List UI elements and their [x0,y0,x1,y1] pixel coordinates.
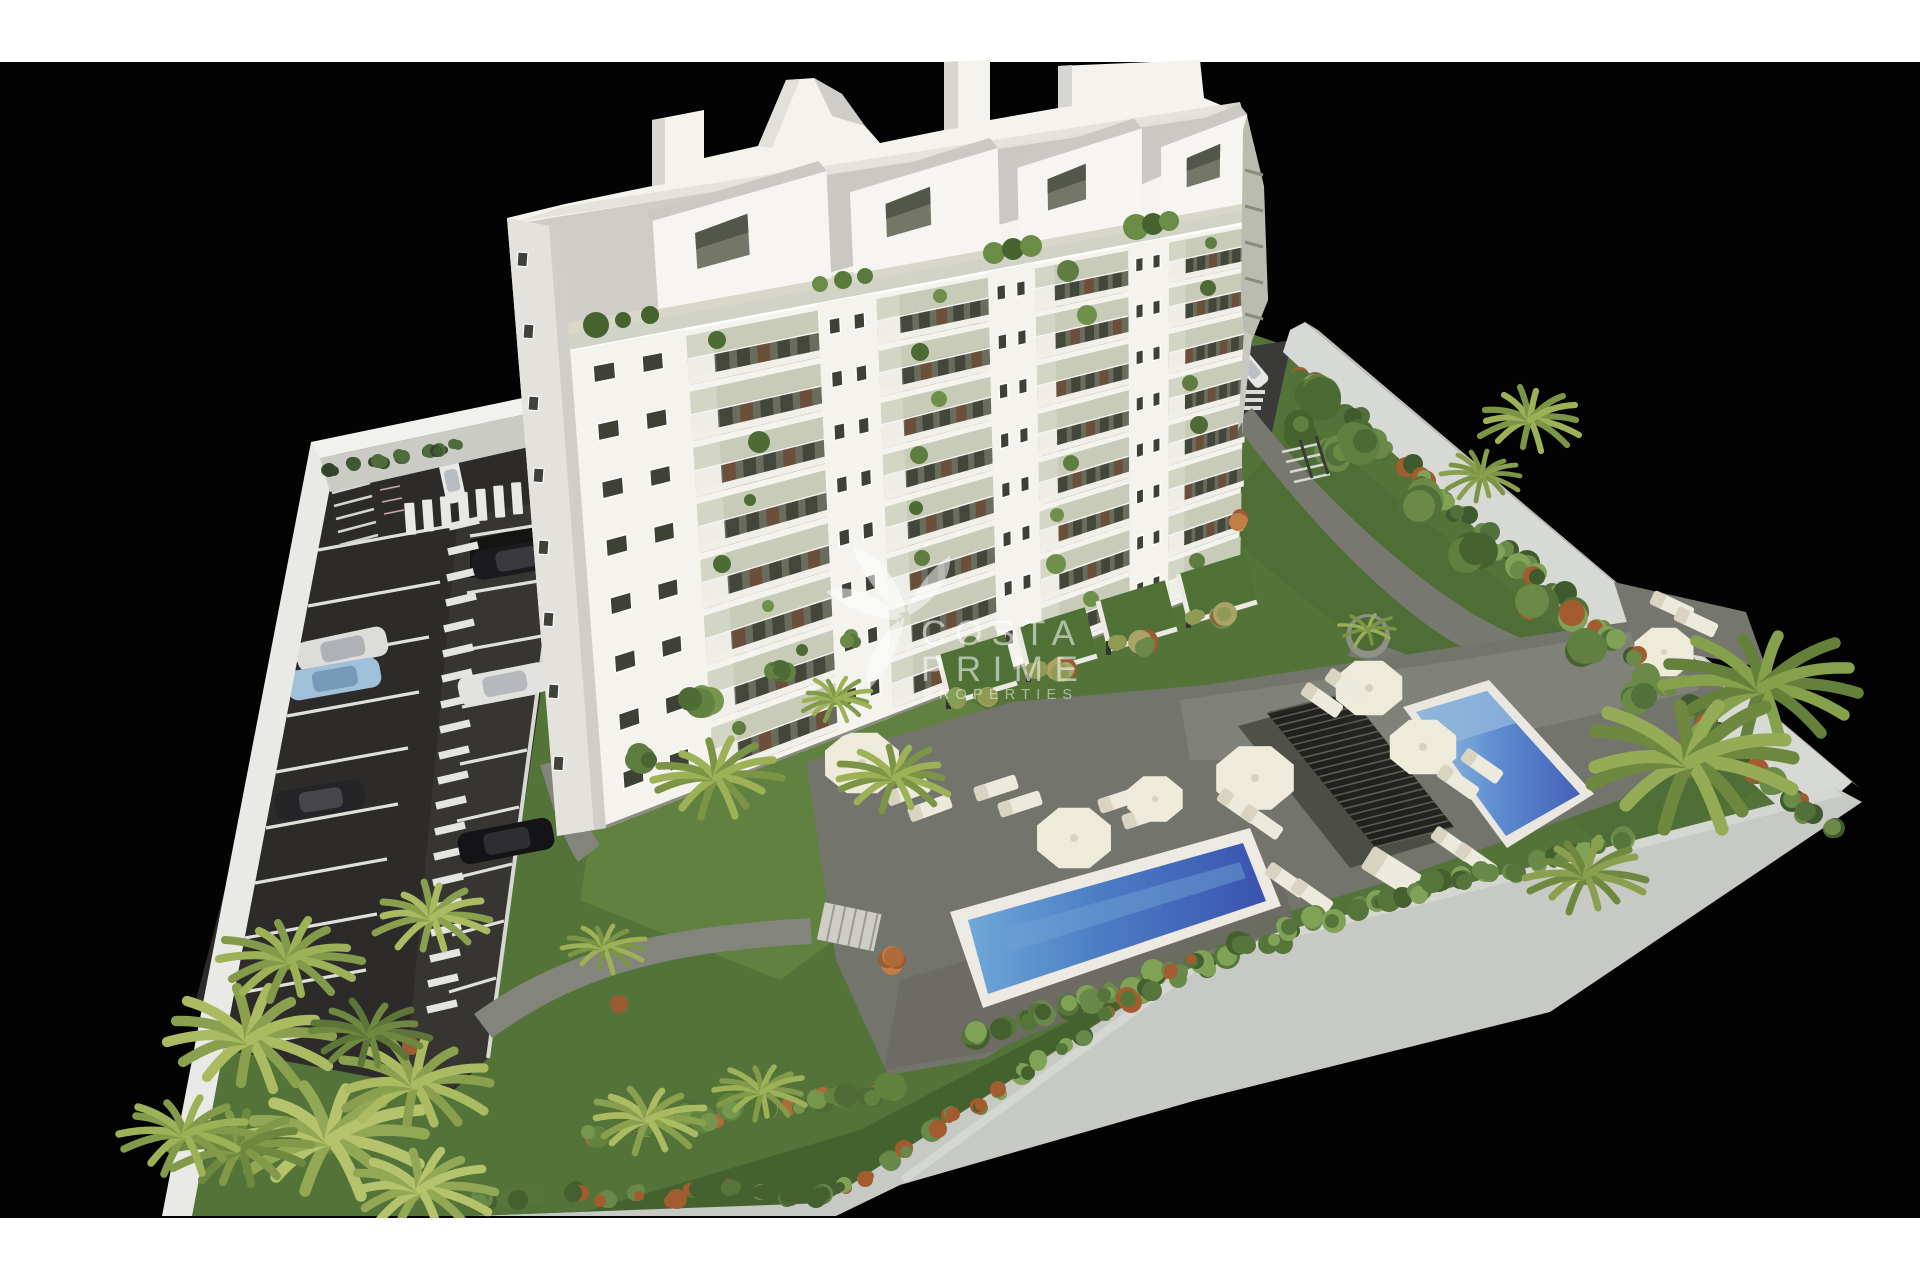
svg-text:COSTA: COSTA [921,614,1084,653]
svg-text:PROPERTIES: PROPERTIES [923,687,1078,703]
svg-text:PRIME: PRIME [921,650,1089,689]
